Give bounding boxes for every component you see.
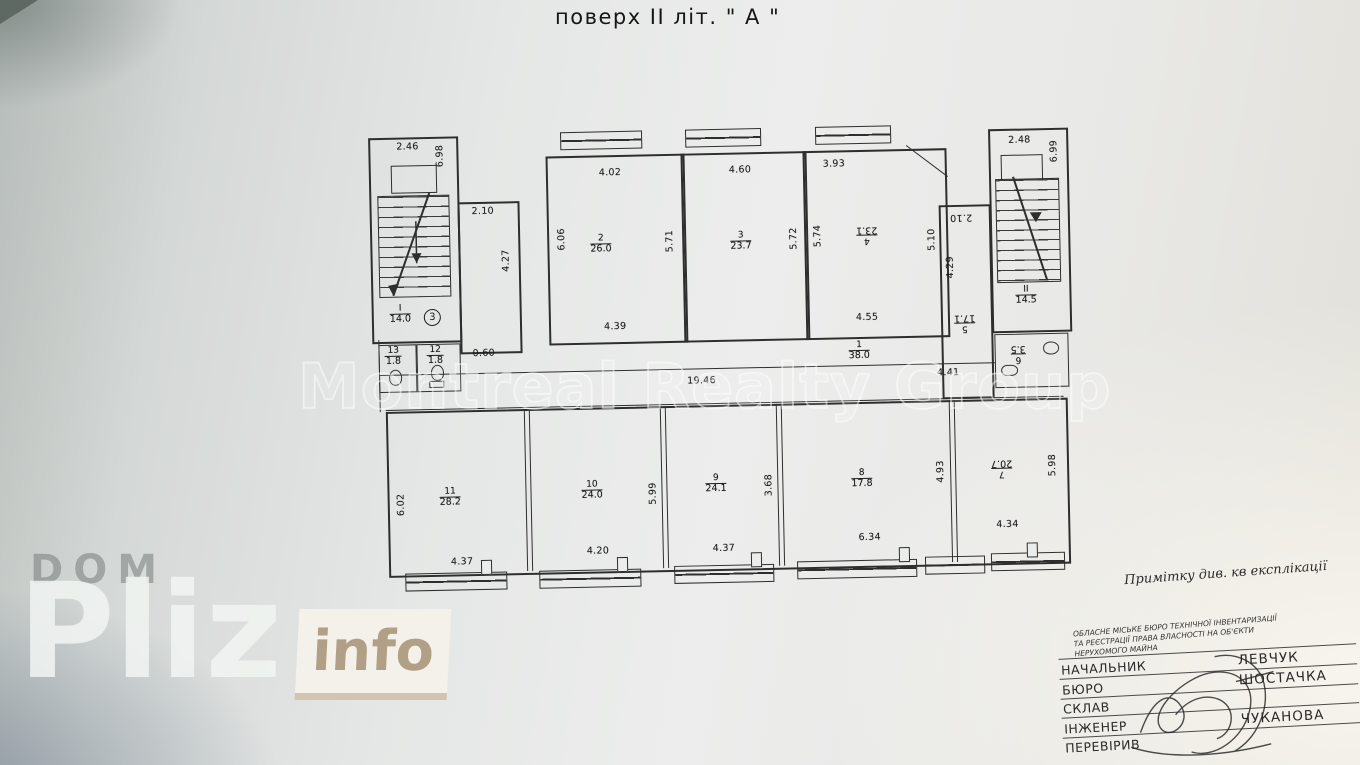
page-title: поверх II літ. " А " <box>555 5 780 29</box>
dim-stair-left-side: 6.98 <box>434 145 445 168</box>
room-label-5: 5 17.1 <box>954 312 976 334</box>
room-label-11: 11 28.2 <box>439 486 461 508</box>
dim-room9-right: 3.68 <box>763 474 774 497</box>
dim-room5-top: 2.10 <box>950 212 973 223</box>
room-area: 23.7 <box>730 241 751 252</box>
registration-stamp: ОБЛАСНЕ МІСЬКЕ БЮРО ТЕХНІЧНОЇ ІНВЕНТАРИЗ… <box>1057 609 1360 757</box>
room-label-10: 10 24.0 <box>581 479 603 501</box>
room-number: 5 <box>954 322 975 334</box>
photo-corner-shadow <box>0 0 38 24</box>
dim-room4-bottom: 4.55 <box>856 312 879 323</box>
stair-landing <box>391 165 438 194</box>
dim-room11-left: 6.02 <box>396 494 407 517</box>
room-area: 23.1 <box>856 224 877 235</box>
dim-room5-side: 4.29 <box>945 256 956 279</box>
room-area: 26.0 <box>590 244 611 255</box>
door-mark <box>617 557 628 572</box>
dim-room3-top: 4.60 <box>729 164 752 175</box>
room-area: 24.1 <box>705 484 726 495</box>
room-area: 20.7 <box>991 457 1012 468</box>
dim-room7-bottom: 4.34 <box>996 519 1019 530</box>
dim-room3-right: 5.72 <box>788 227 799 250</box>
dim-room10-bottom: 4.20 <box>587 545 610 556</box>
room-label-stair-right: II 14.5 <box>1015 284 1037 306</box>
room-label-7: 7 20.7 <box>991 457 1013 479</box>
stamp-signature-cell <box>1160 739 1242 743</box>
stamp-name <box>1242 731 1360 740</box>
watermark-pliz: Pliz <box>18 566 282 698</box>
dim-room7-right: 5.98 <box>1047 454 1058 477</box>
stamp-signature-cell <box>1159 719 1241 723</box>
room-label-8: 8 17.8 <box>851 468 873 490</box>
room-area: 28.2 <box>440 497 461 508</box>
stamp-signature-cell <box>1157 680 1239 684</box>
dim-room4-right: 5.10 <box>926 228 937 251</box>
dim-room4-left: 5.74 <box>812 225 823 248</box>
watermark-info: info <box>311 619 436 684</box>
room-label-9: 9 24.1 <box>705 473 727 495</box>
dim-stair-left-top: 2.46 <box>396 141 419 152</box>
dim-room4-top: 3.93 <box>823 158 846 169</box>
stamp-signature-cell <box>1158 700 1240 704</box>
door-mark <box>481 560 492 575</box>
room-area: 17.8 <box>851 479 872 490</box>
dim-room10-right: 5.99 <box>647 482 658 505</box>
window-band <box>560 131 642 151</box>
stamp-name <box>1240 692 1359 701</box>
dim-stair-right-top: 2.48 <box>1008 134 1031 145</box>
room-area: 17.1 <box>954 312 975 323</box>
floor-plan-photo: поверх II літ. " А " 2.46 6.98 I 14.0 3 … <box>0 0 1360 765</box>
dim-room9-bottom: 4.37 <box>713 543 736 554</box>
dim-room2-right: 5.71 <box>664 230 675 253</box>
room-label-2: 2 26.0 <box>590 233 612 255</box>
room-label-stair-left: I 14.0 <box>390 303 412 325</box>
window-band <box>685 128 761 148</box>
stair-direction-arrow <box>995 174 1061 287</box>
window-band <box>815 125 891 145</box>
window-band <box>925 555 985 574</box>
dim-room11-bottom: 4.37 <box>451 556 474 567</box>
room-label-3: 3 23.7 <box>730 230 752 252</box>
room-label-4: 4 23.1 <box>856 224 878 246</box>
room-number: 4 <box>856 234 877 246</box>
door-mark <box>751 552 762 567</box>
door-mark <box>1027 542 1038 557</box>
watermark-info-box: info <box>295 609 452 700</box>
stair-direction-arrow <box>377 191 451 302</box>
dim-room8-right: 4.93 <box>935 460 946 483</box>
room-area: 24.0 <box>582 491 603 502</box>
dim-room2-top: 4.02 <box>599 167 622 178</box>
room-area: 14.0 <box>390 314 411 325</box>
dim-room2-bottom: 4.39 <box>604 321 627 332</box>
watermark-montreal-realty-group: Montreal Realty Group <box>298 350 1111 423</box>
stamp-signature-cell <box>1156 660 1238 664</box>
dim-room8-bottom: 6.34 <box>858 532 881 543</box>
room-area: 14.5 <box>1016 295 1037 306</box>
stamp-role: ПЕРЕВІРИВ <box>1063 734 1161 757</box>
dim-vestibule-top: 2.10 <box>472 206 495 217</box>
handwritten-note: Примітку див. кв експлікації <box>1124 559 1328 588</box>
dim-vestibule-side: 4.27 <box>500 249 511 272</box>
room-number: 7 <box>991 467 1012 479</box>
dim-stair-right-side: 6.99 <box>1048 140 1059 163</box>
vestibule <box>457 201 522 354</box>
door-mark <box>899 547 910 562</box>
dim-room2-left: 6.06 <box>556 228 567 251</box>
